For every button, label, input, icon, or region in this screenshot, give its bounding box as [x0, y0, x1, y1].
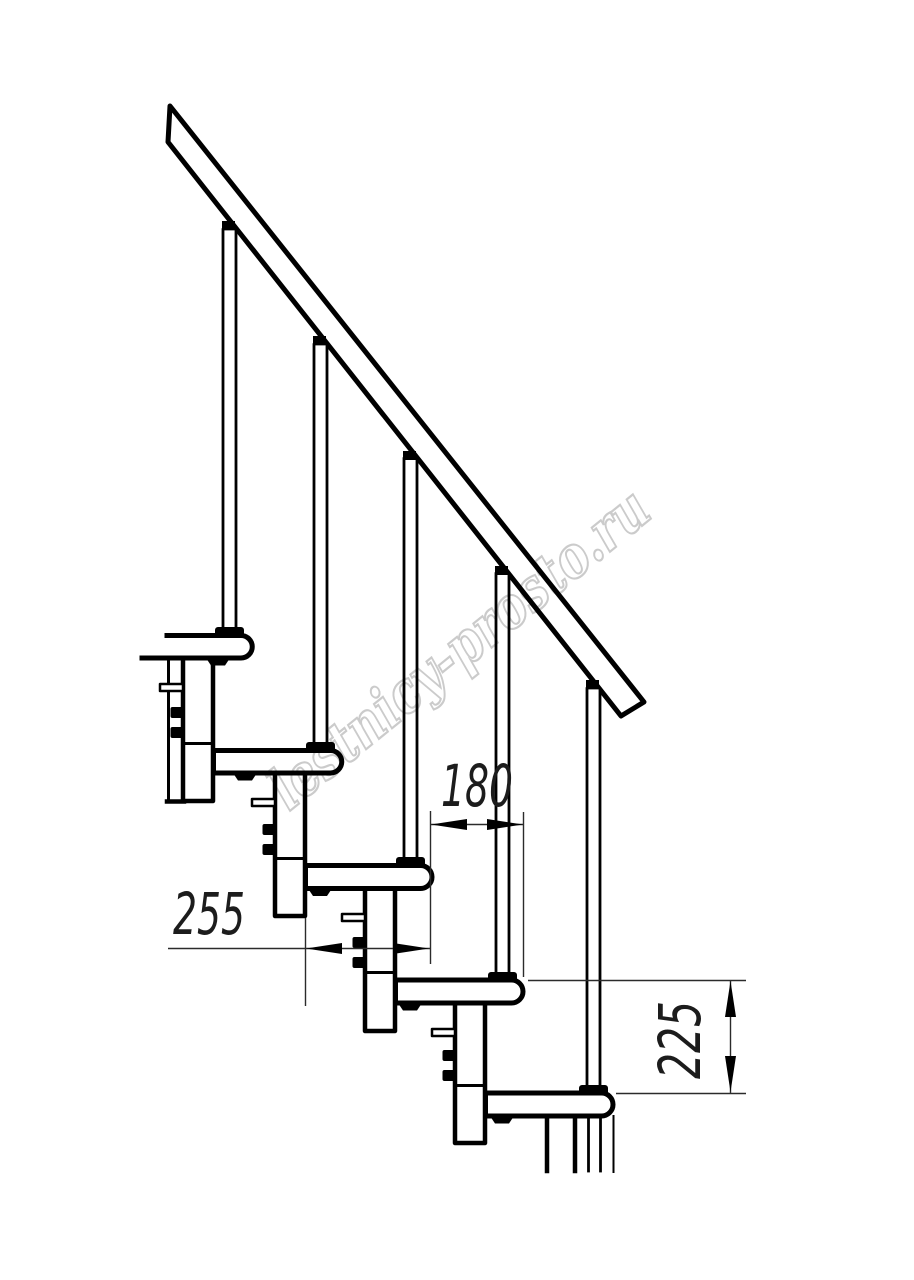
tread-4-under-bolt [398, 1003, 422, 1011]
drawing-canvas: 180 255 225 lestnicy-prosto.ru [0, 0, 914, 1280]
tread-5-under-bolt [490, 1116, 514, 1124]
dimension-225: 225 [528, 980, 746, 1094]
tread-2-under-bolt [233, 773, 257, 781]
support-column-1 [183, 657, 213, 801]
dimension-225-label: 225 [646, 1001, 714, 1079]
column-3-bolt-upper [353, 937, 366, 948]
dimension-180-label: 180 [441, 752, 513, 820]
column-1-bolt-lower [171, 727, 184, 738]
staircase-technical-drawing: 180 255 225 lestnicy-prosto.ru [0, 0, 914, 1280]
dimension-255-label: 255 [173, 880, 245, 948]
tread-3-under-bolt [308, 889, 332, 897]
support-column-3 [365, 887, 395, 1031]
tread-3 [306, 866, 433, 889]
column-2-bolt-lower [263, 844, 276, 855]
column-2-side-tab [252, 799, 275, 806]
column-2-bolt-upper [263, 824, 276, 835]
tread-5 [486, 1093, 614, 1116]
baluster-4-base-connector [488, 972, 517, 982]
baluster-3-top-cap [403, 451, 416, 460]
column-4-bolt-upper [443, 1050, 456, 1061]
baluster-5-shaft [587, 688, 600, 1094]
dimension-225-arrow-bottom [725, 1056, 736, 1092]
baluster-3-base-connector [396, 857, 425, 867]
baluster-1-top-cap [222, 221, 235, 230]
baluster-5-base-connector [579, 1085, 608, 1095]
dimension-180-arrow-left [431, 819, 467, 830]
column-1-bolt-upper [171, 707, 184, 718]
dimension-255-arrow-right [393, 943, 429, 954]
baluster-1-shaft [223, 229, 236, 636]
baluster-1-base-connector [215, 627, 244, 637]
column-4-side-tab [432, 1029, 455, 1036]
column-1-side-tab [160, 684, 183, 691]
tread-1 [142, 636, 252, 659]
column-4-bolt-lower [443, 1070, 456, 1081]
column-3-bolt-lower [353, 957, 366, 968]
tread-4 [396, 980, 524, 1003]
baluster-5-top-cap [586, 680, 599, 689]
dimension-255-arrow-left [306, 943, 342, 954]
support-column-5-cropped [547, 1116, 614, 1172]
baluster-2-top-cap [313, 336, 326, 345]
baluster-2-shaft [314, 344, 327, 751]
dimension-225-arrow-top [725, 981, 736, 1017]
support-column-4 [455, 1002, 485, 1143]
column-3-side-tab [342, 914, 365, 921]
